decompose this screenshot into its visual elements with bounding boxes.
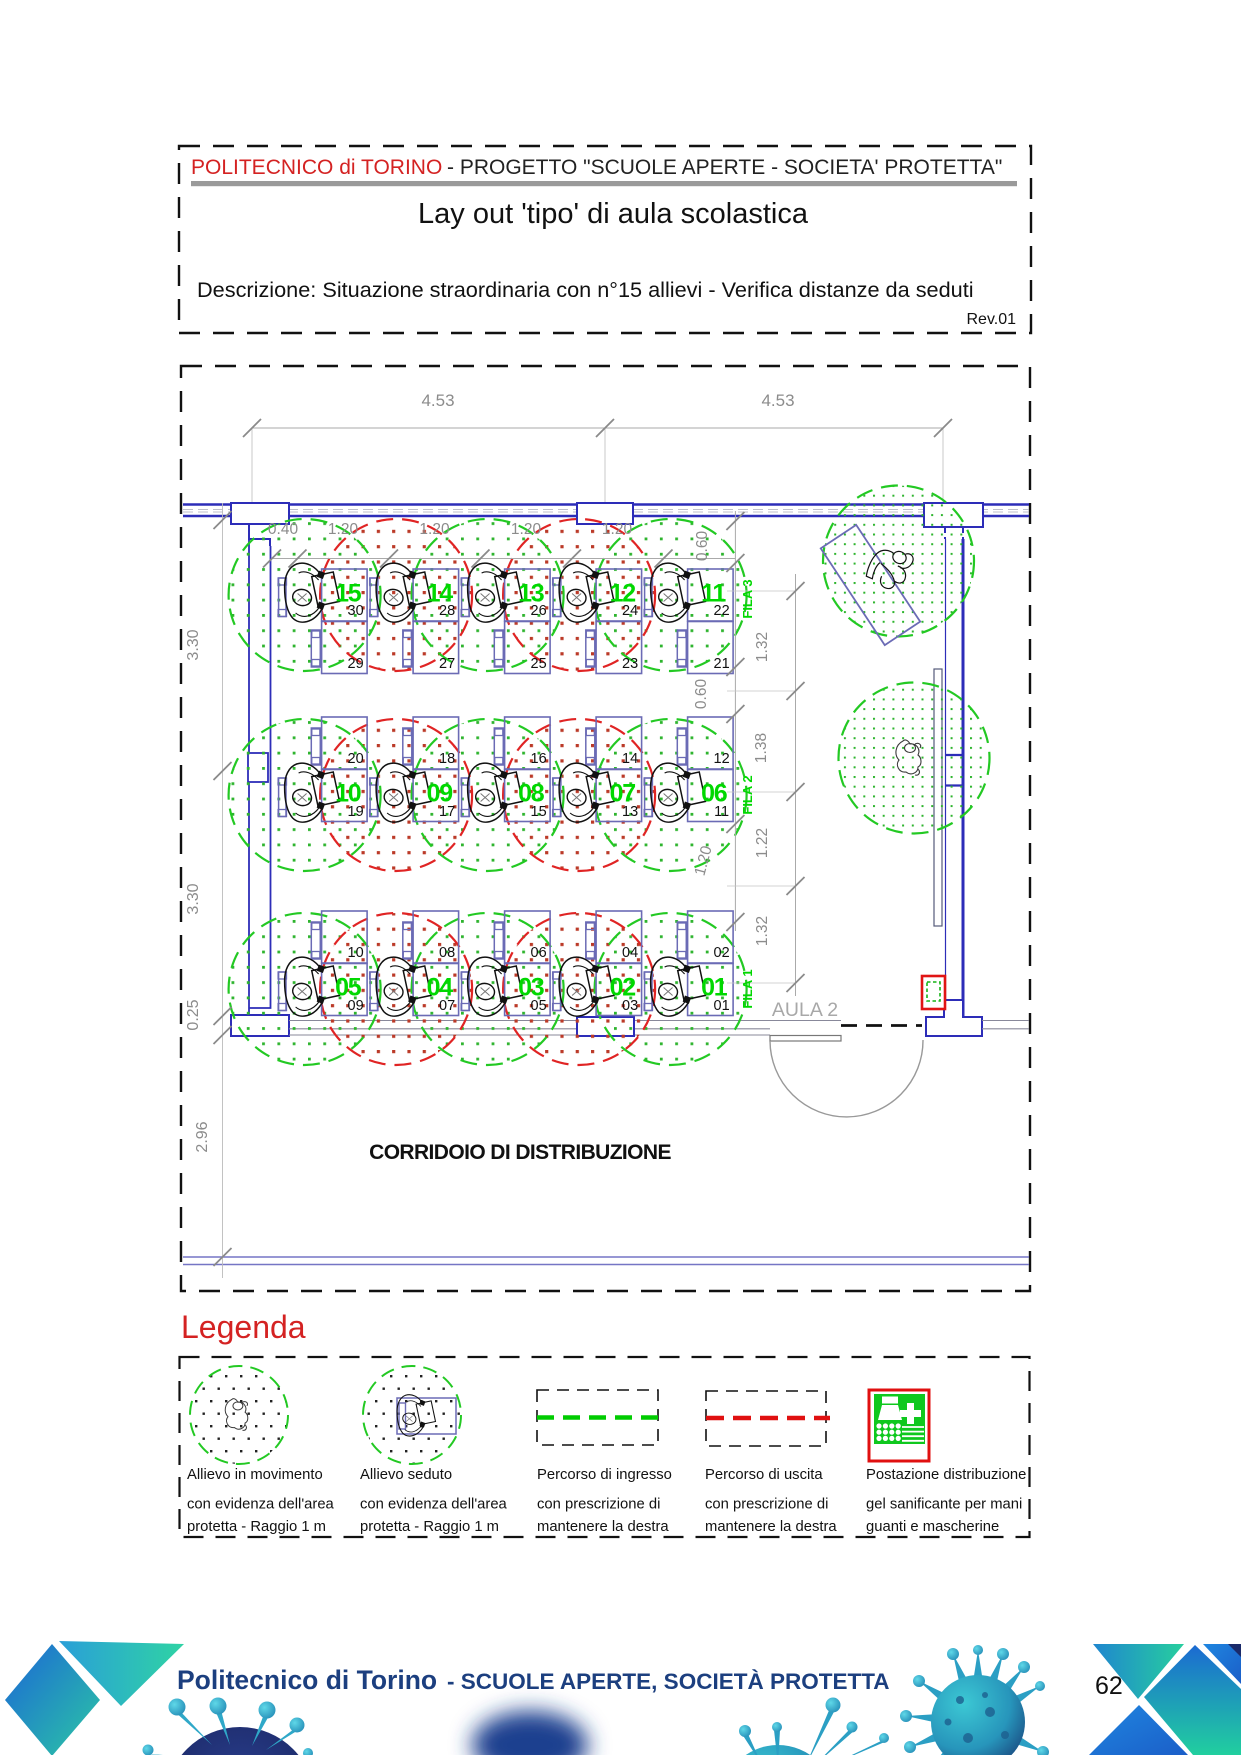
svg-text:05: 05 — [531, 998, 547, 1014]
svg-text:24: 24 — [622, 603, 638, 619]
svg-text:4.53: 4.53 — [761, 391, 794, 410]
svg-text:25: 25 — [531, 656, 547, 672]
svg-text:AULA 2: AULA 2 — [772, 999, 838, 1021]
svg-text:con evidenza dell'area: con evidenza dell'area — [187, 1497, 335, 1513]
svg-text:mantenere la destra: mantenere la destra — [537, 1519, 669, 1535]
svg-text:1.32: 1.32 — [754, 632, 771, 662]
svg-text:16: 16 — [531, 751, 547, 767]
svg-text:Percorso di ingresso: Percorso di ingresso — [537, 1467, 672, 1483]
svg-text:FILA 2: FILA 2 — [740, 775, 755, 814]
svg-text:20: 20 — [348, 751, 364, 767]
svg-text:guanti e mascherine: guanti e mascherine — [866, 1519, 999, 1535]
svg-text:Legenda: Legenda — [181, 1309, 306, 1345]
svg-text:POLITECNICO di TORINO: POLITECNICO di TORINO — [191, 156, 442, 179]
svg-text:Descrizione: Situazione straor: Descrizione: Situazione straordinaria co… — [197, 277, 974, 302]
svg-text:protetta - Raggio 1 m: protetta - Raggio 1 m — [360, 1519, 499, 1535]
svg-text:1.38: 1.38 — [753, 733, 770, 763]
svg-text:30: 30 — [348, 603, 364, 619]
svg-text:protetta - Raggio 1 m: protetta - Raggio 1 m — [187, 1519, 326, 1535]
svg-text:06: 06 — [531, 945, 547, 961]
svg-text:19: 19 — [348, 804, 364, 820]
svg-text:Percorso di uscita: Percorso di uscita — [705, 1467, 823, 1483]
svg-text:1.20: 1.20 — [511, 521, 542, 538]
svg-text:09: 09 — [348, 998, 364, 1014]
svg-text:03: 03 — [622, 998, 638, 1014]
svg-text:10: 10 — [348, 945, 364, 961]
svg-text:0.60: 0.60 — [693, 679, 710, 710]
svg-text:1.20: 1.20 — [328, 521, 359, 538]
svg-text:mantenere la destra: mantenere la destra — [705, 1519, 837, 1535]
svg-text:3.30: 3.30 — [185, 629, 202, 660]
svg-text:02: 02 — [714, 945, 730, 961]
svg-text:62: 62 — [1095, 1672, 1123, 1700]
svg-text:29: 29 — [348, 656, 364, 672]
svg-text:12: 12 — [714, 751, 730, 767]
svg-text:04: 04 — [622, 945, 638, 961]
svg-text:1.20: 1.20 — [602, 521, 633, 538]
svg-text:17: 17 — [439, 804, 455, 820]
svg-text:07: 07 — [439, 998, 455, 1014]
svg-text:CORRIDOIO DI DISTRIBUZIONE: CORRIDOIO DI DISTRIBUZIONE — [369, 1141, 671, 1164]
svg-text:- SCUOLE APERTE, SOCIETÀ PROTE: - SCUOLE APERTE, SOCIETÀ PROTETTA — [447, 1669, 890, 1694]
svg-text:28: 28 — [439, 603, 455, 619]
svg-text:27: 27 — [439, 656, 455, 672]
svg-text:Rev.01: Rev.01 — [966, 311, 1016, 328]
svg-text:1.22: 1.22 — [754, 828, 771, 858]
svg-text:0.25: 0.25 — [185, 999, 202, 1030]
svg-text:- PROGETTO "SCUOLE APERTE - SO: - PROGETTO "SCUOLE APERTE - SOCIETA' PRO… — [447, 156, 1002, 179]
svg-text:22: 22 — [714, 603, 730, 619]
svg-text:3.30: 3.30 — [185, 883, 202, 914]
svg-text:26: 26 — [531, 603, 547, 619]
svg-text:01: 01 — [714, 998, 730, 1014]
svg-text:23: 23 — [622, 656, 638, 672]
svg-text:08: 08 — [439, 945, 455, 961]
svg-text:Postazione distribuzione: Postazione distribuzione — [866, 1467, 1026, 1483]
svg-text:Lay out 'tipo' di aula scolast: Lay out 'tipo' di aula scolastica — [418, 198, 809, 230]
svg-text:13: 13 — [622, 804, 638, 820]
svg-text:0.40: 0.40 — [268, 521, 299, 538]
svg-text:0.60: 0.60 — [694, 531, 711, 562]
svg-text:Allievo seduto: Allievo seduto — [360, 1467, 452, 1483]
svg-text:gel sanificante per mani: gel sanificante per mani — [866, 1497, 1022, 1513]
svg-text:con evidenza dell'area: con evidenza dell'area — [360, 1497, 508, 1513]
svg-text:Politecnico di Torino: Politecnico di Torino — [177, 1665, 437, 1695]
svg-text:14: 14 — [622, 751, 638, 767]
svg-text:Allievo in movimento: Allievo in movimento — [187, 1467, 323, 1483]
svg-text:4.53: 4.53 — [421, 391, 454, 410]
svg-text:FILA 1: FILA 1 — [740, 969, 755, 1008]
svg-text:FILA 3: FILA 3 — [740, 579, 755, 618]
svg-text:2.96: 2.96 — [194, 1121, 211, 1152]
svg-text:1.20: 1.20 — [419, 521, 450, 538]
svg-text:con prescrizione di: con prescrizione di — [537, 1497, 660, 1513]
svg-text:11: 11 — [714, 804, 729, 820]
svg-text:1.32: 1.32 — [754, 916, 771, 946]
svg-text:15: 15 — [531, 804, 547, 820]
svg-text:18: 18 — [439, 751, 455, 767]
svg-text:21: 21 — [714, 656, 730, 672]
svg-text:con prescrizione di: con prescrizione di — [705, 1497, 828, 1513]
